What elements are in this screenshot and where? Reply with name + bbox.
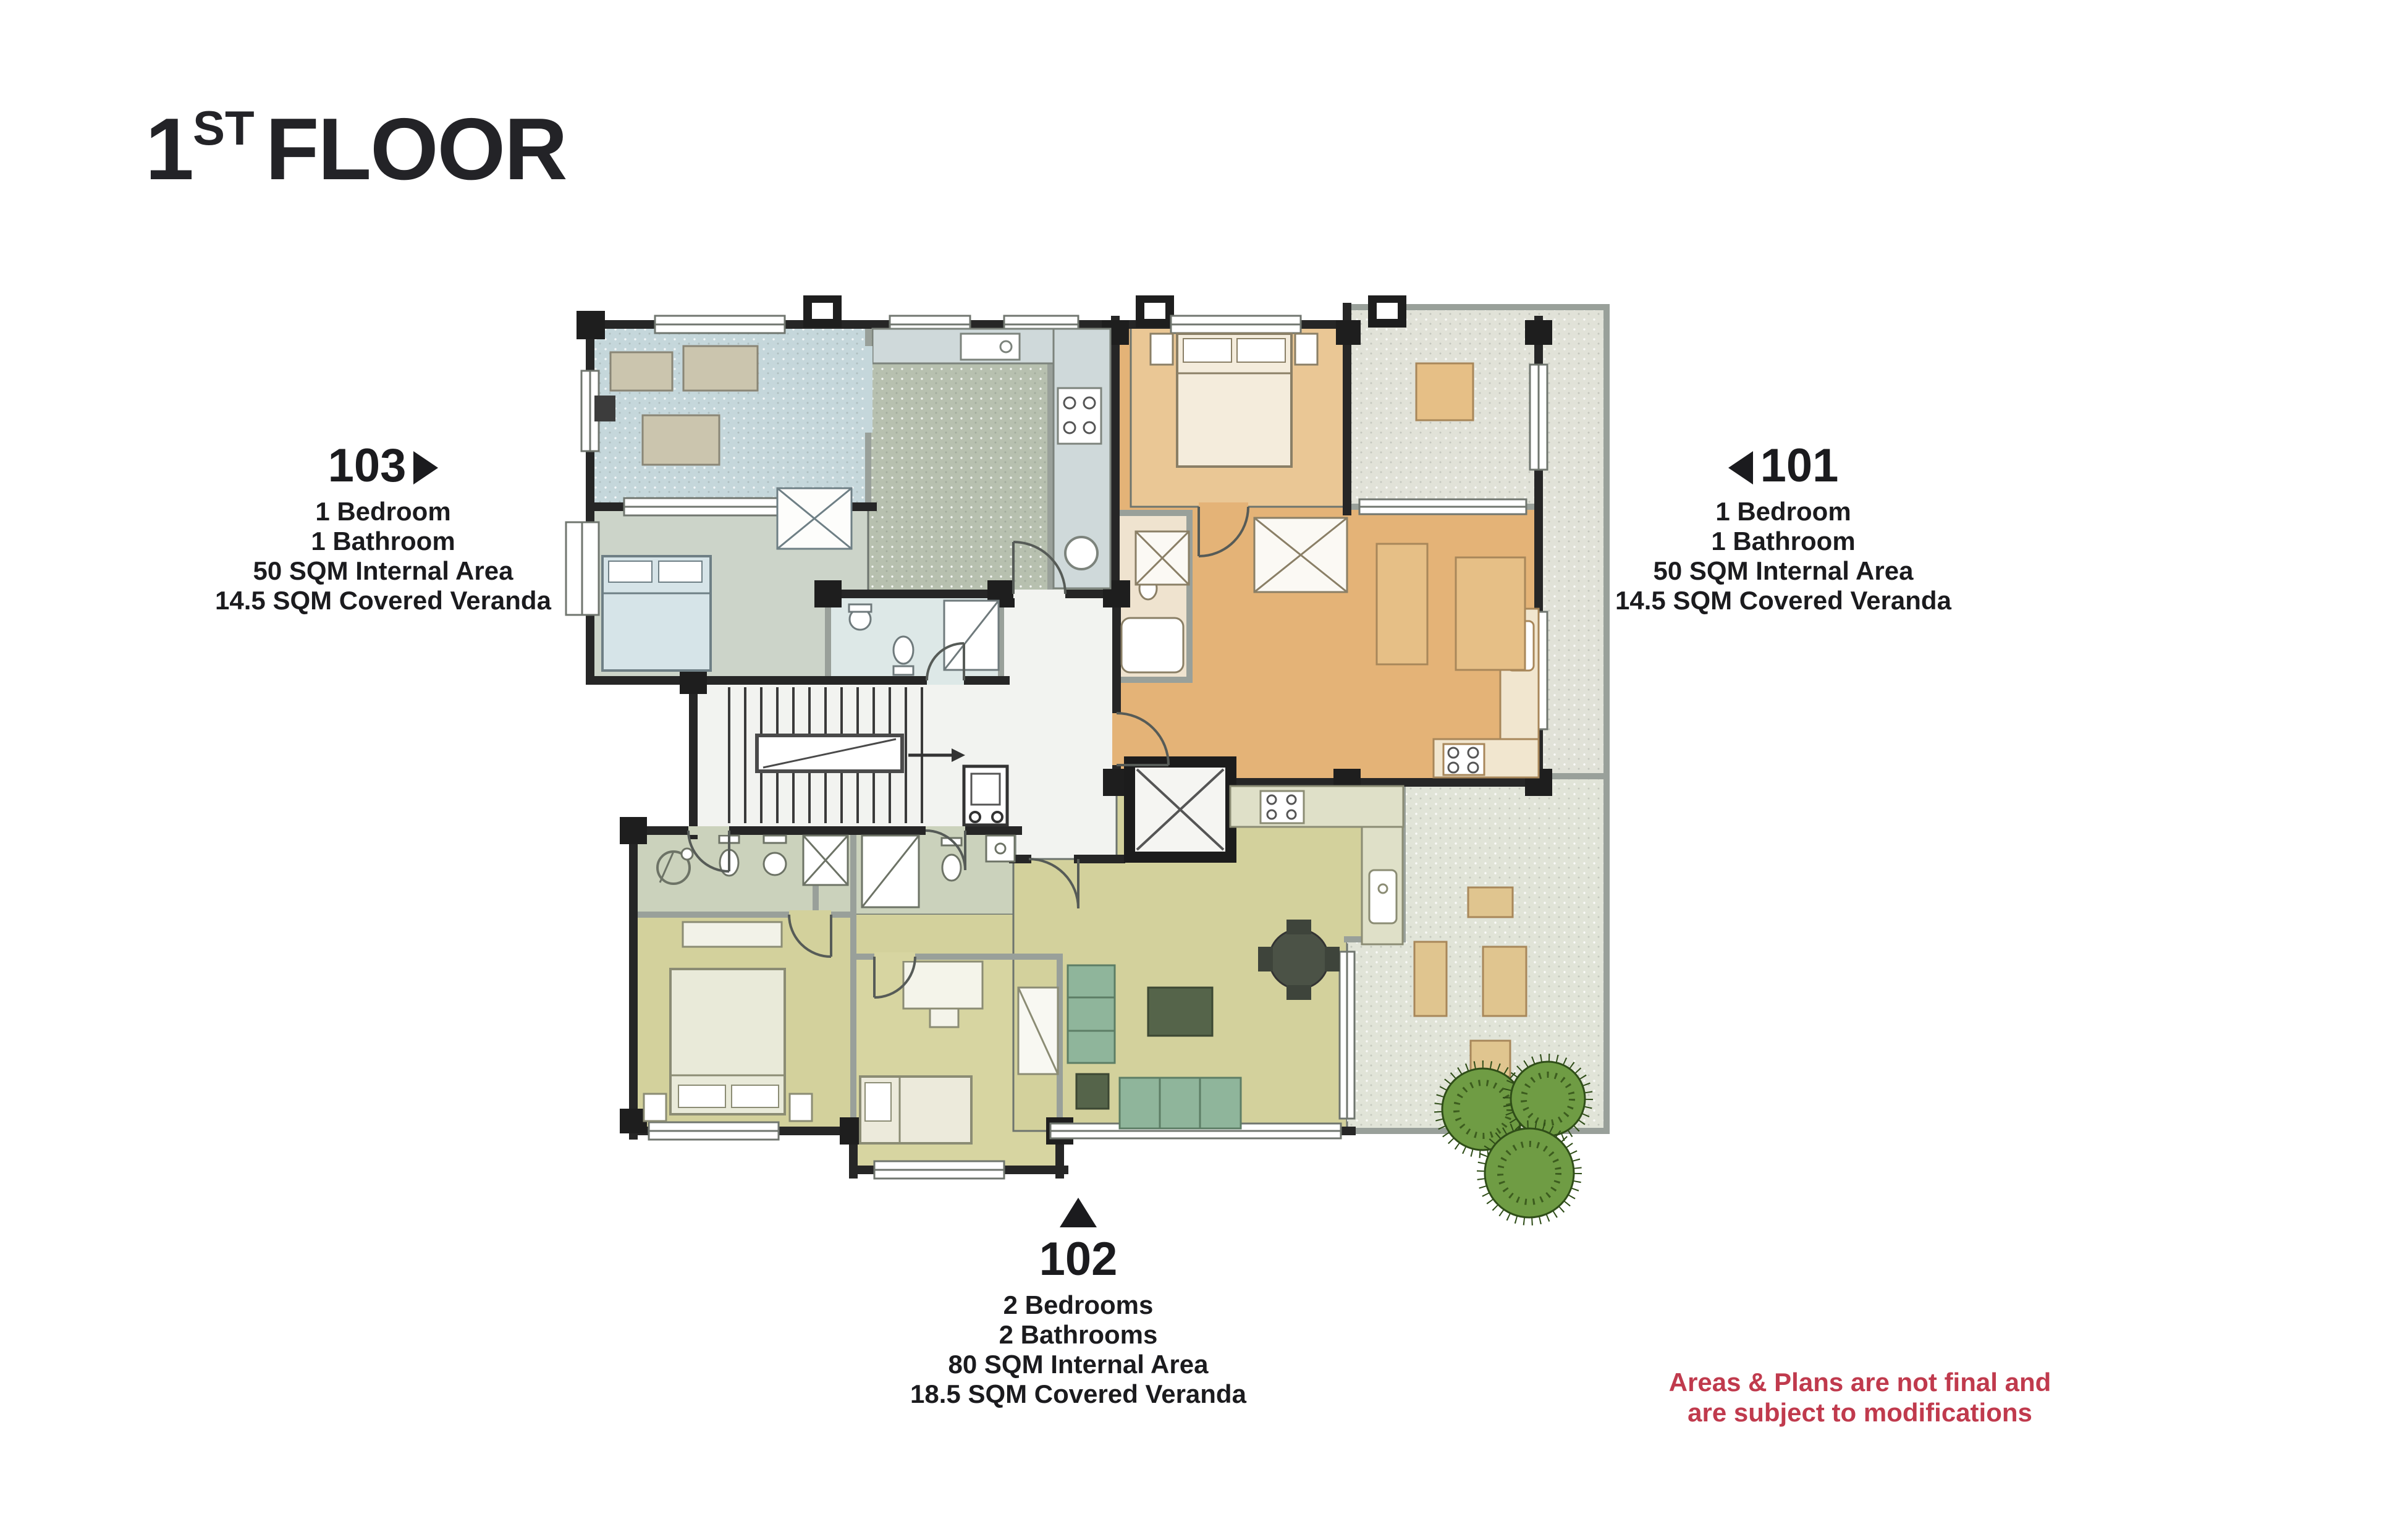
floor-plan-drawing [0, 0, 2408, 1532]
plants [1438, 1058, 1589, 1221]
room-hall-102 [853, 915, 1013, 957]
elevator [1130, 762, 1231, 857]
room-corridor [1001, 594, 1117, 680]
floor-plan-page: 1STFLOOR 103 1 Bedroom 1 Bathroom 50 SQM… [0, 0, 2408, 1532]
stair-lift [964, 766, 1007, 825]
